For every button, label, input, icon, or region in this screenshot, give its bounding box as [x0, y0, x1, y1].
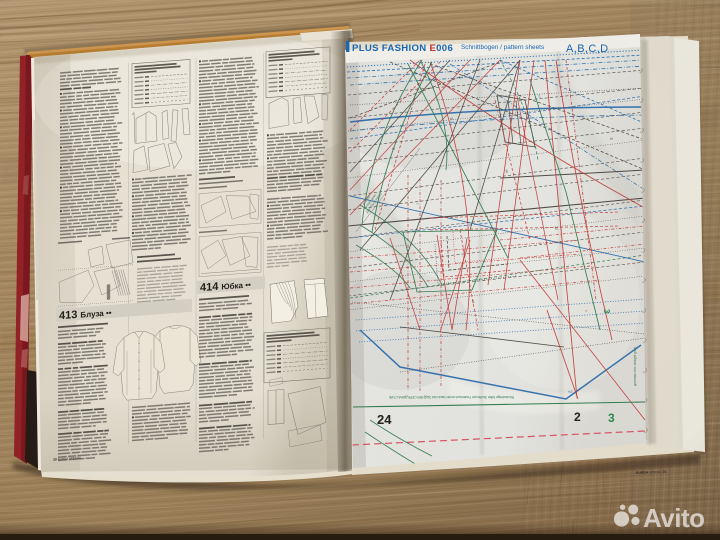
- svg-text:Avito: Avito: [643, 503, 705, 533]
